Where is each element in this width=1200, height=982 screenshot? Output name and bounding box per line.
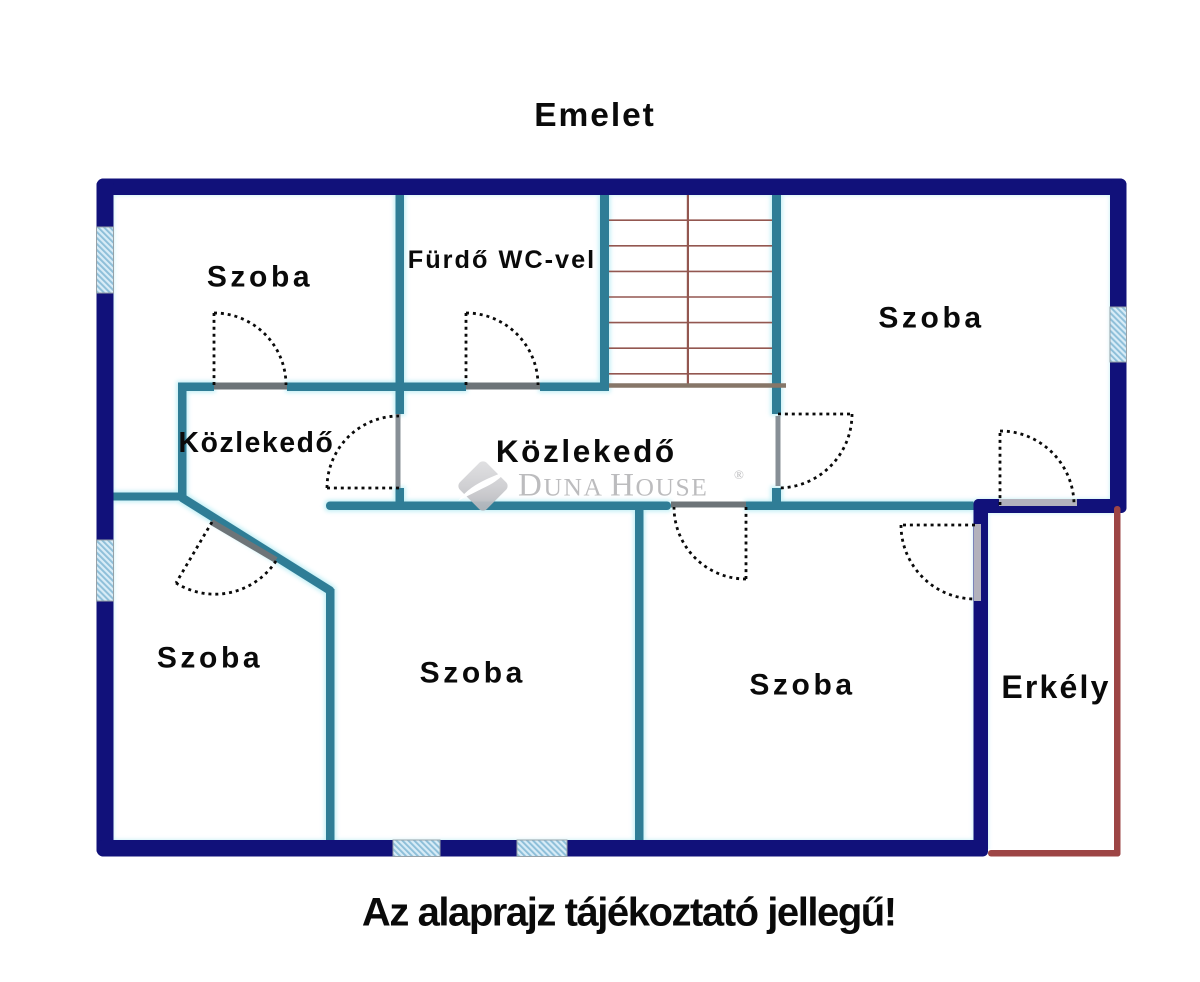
svg-text:Szoba: Szoba (207, 261, 313, 294)
svg-text:®: ® (734, 467, 744, 482)
svg-text:Erkély: Erkély (1001, 669, 1110, 705)
svg-text:Szoba: Szoba (878, 302, 984, 335)
svg-text:Fürdő WC-vel: Fürdő WC-vel (408, 246, 596, 274)
svg-text:Szoba: Szoba (749, 668, 855, 701)
svg-text:Közlekedő: Közlekedő (496, 433, 677, 469)
svg-text:Szoba: Szoba (420, 657, 526, 690)
svg-text:Az alaprajz tájékoztató jelleg: Az alaprajz tájékoztató jellegű! (362, 890, 896, 934)
svg-text:Szoba: Szoba (157, 642, 263, 675)
svg-text:Közlekedő: Közlekedő (179, 426, 335, 458)
svg-text:DUNA HOUSE: DUNA HOUSE (518, 468, 709, 504)
svg-text:Emelet: Emelet (534, 97, 656, 134)
